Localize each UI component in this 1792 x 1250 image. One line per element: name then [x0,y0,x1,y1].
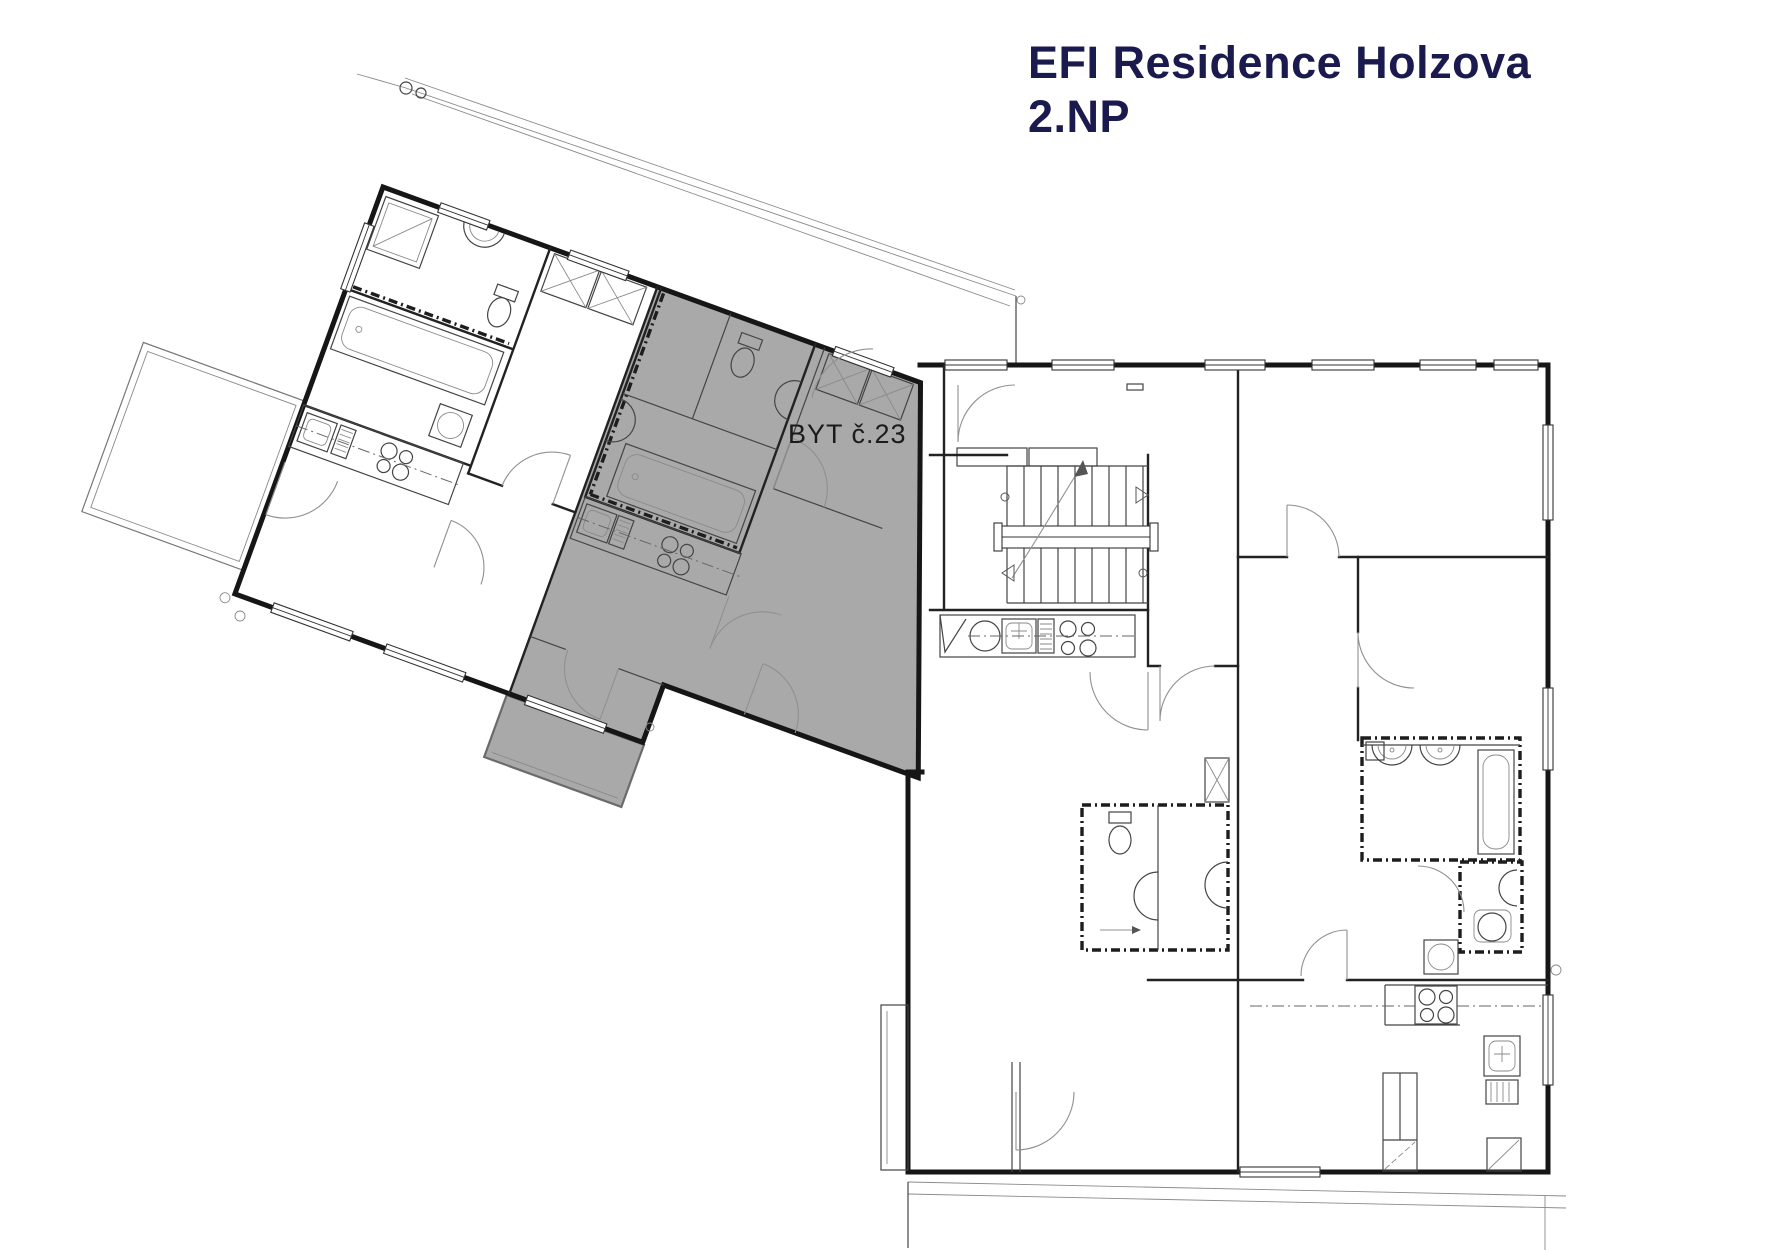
right-wing [812,349,1566,1250]
stairwell [930,365,1158,610]
kitchen-bottom-right [1250,985,1548,1171]
bathtub-white [330,296,503,405]
kitchen-white [289,405,468,506]
washer-white [429,404,473,448]
balcony-white-apartment [82,342,305,570]
column-marker [219,591,232,604]
column-marker [1551,965,1561,975]
left-wing [50,123,1047,898]
floor-plan-page: EFI Residence Holzova 2.NP [0,0,1792,1250]
wardrobe-middle-apartment [1205,758,1229,802]
balcony-bottom [881,1005,908,1170]
windows-right-wing [945,360,1553,1177]
column-marker [235,611,245,621]
toilet-white [484,284,519,330]
bathroom-right-apartment [1362,738,1520,860]
unit-label[interactable]: BYT č.23 [788,419,907,449]
wc-right-apartment [1418,862,1522,952]
washer-right-apartment [1424,940,1458,974]
kitchen-middle-apartment [940,615,1135,657]
entry-door [958,385,1015,442]
floor-plan-drawing: BYT č.23 [0,0,1792,1250]
right-wing-outer-wall [908,365,1548,1172]
walkway-edge [908,1182,1566,1250]
bathroom-middle-apartment [1082,805,1228,950]
